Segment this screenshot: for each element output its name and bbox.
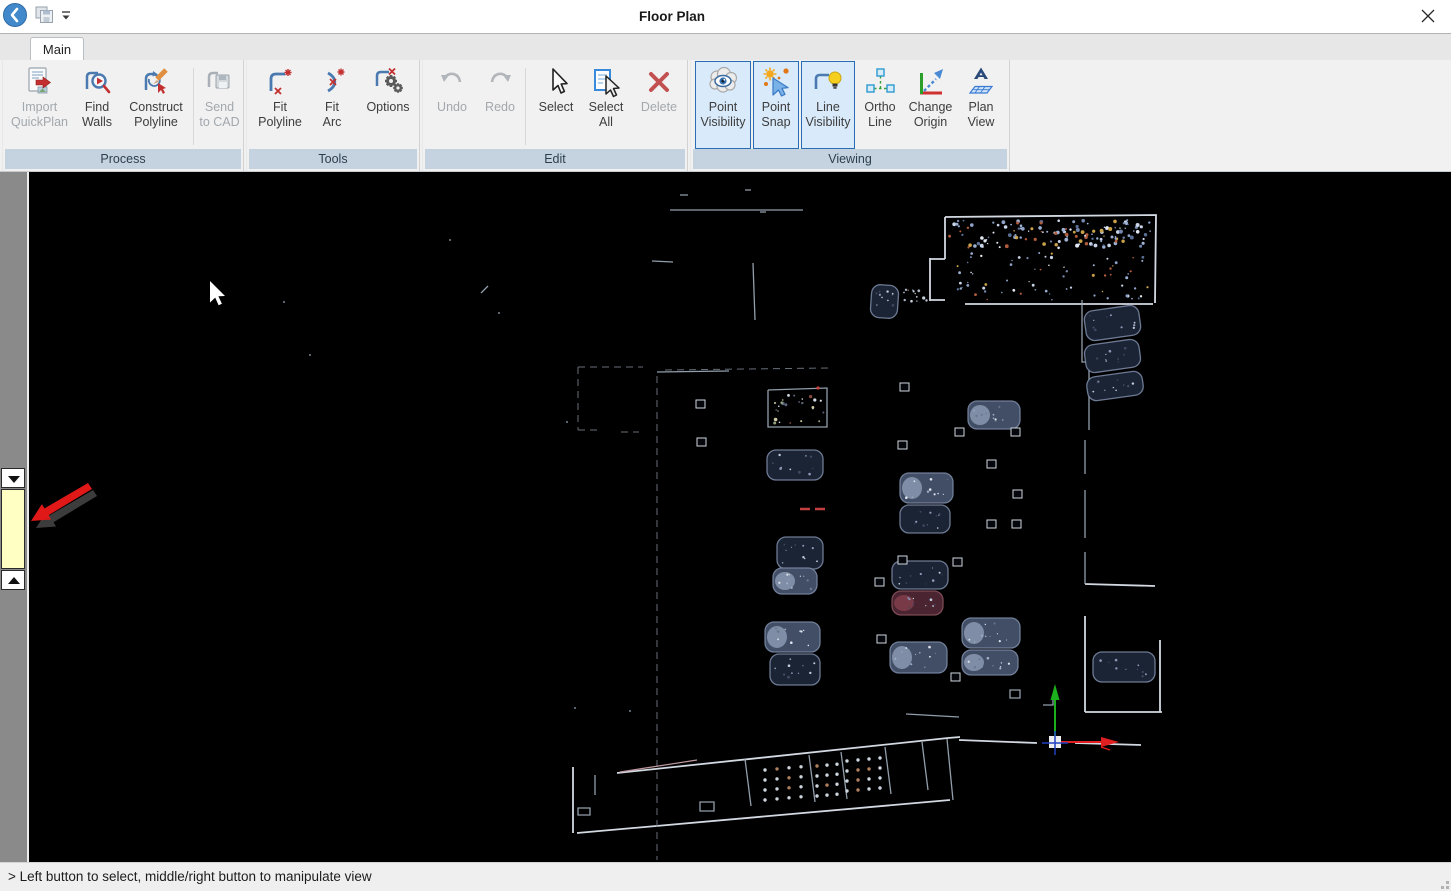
button-label-line2: Polyline (134, 115, 178, 130)
undo-icon (436, 66, 468, 98)
button-label-line2: Snap (761, 115, 790, 130)
options-icon (372, 66, 404, 98)
wall-lines-medium (481, 190, 1089, 815)
ribbon-button-point-visibility[interactable]: Point Visibility (695, 61, 751, 149)
triangle-up-icon (8, 577, 20, 584)
ribbon-group-viewing: Point Visibility Point Snap (690, 60, 1010, 171)
ribbon-group-process: Import QuickPlan Find Walls (2, 60, 244, 171)
button-label-line2: Walls (82, 115, 112, 130)
button-label-line1: Redo (485, 100, 515, 115)
find-walls-icon (81, 66, 113, 98)
construct-polyline-icon (140, 66, 172, 98)
button-label-line1: Change (909, 100, 953, 115)
ribbon-button-point-snap[interactable]: Point Snap (753, 61, 799, 149)
status-text: > Left button to select, middle/right bu… (8, 869, 372, 884)
button-label-line2: Visibility (701, 115, 746, 130)
send-to-cad-icon (204, 66, 236, 98)
button-label-line1: Construct (129, 100, 183, 115)
button-label-line1: Point (762, 100, 791, 115)
ribbon-button-redo[interactable]: Redo (477, 62, 523, 148)
titlebar: Floor Plan (0, 0, 1451, 33)
point-cloud-canvas[interactable] (29, 172, 1451, 862)
button-label-line1: Find (85, 100, 109, 115)
resize-grip-icon[interactable] (1437, 877, 1449, 889)
ribbon-button-undo[interactable]: Undo (430, 62, 474, 148)
ribbon-button-send-to-cad[interactable]: Send to CAD (196, 62, 243, 148)
plan-view-icon (965, 66, 997, 98)
ribbon-button-fit-arc[interactable]: Fit Arc (309, 62, 355, 148)
delete-icon (643, 66, 675, 98)
button-label-line2: All (599, 115, 613, 130)
point-cloud-svg (29, 172, 1451, 862)
floor-plan-window: { "window": { "title": "Floor Plan", "ba… (0, 0, 1451, 891)
ribbon-group-label-viewing: Viewing (693, 149, 1007, 169)
ribbon: Import QuickPlan Find Walls (0, 60, 1451, 172)
tab-strip: Main (0, 33, 1451, 60)
point-visibility-icon (707, 66, 739, 98)
import-quickplan-icon (24, 66, 56, 98)
ribbon-button-delete[interactable]: Delete (633, 62, 685, 148)
ribbon-button-import-quickplan[interactable]: Import QuickPlan (6, 62, 73, 148)
line-visibility-icon (812, 66, 844, 98)
button-label-line1: Point (709, 100, 738, 115)
ribbon-group-label-edit: Edit (425, 149, 685, 169)
button-label-line2: Visibility (806, 115, 851, 130)
ribbon-button-fit-polyline[interactable]: Fit Polyline (254, 62, 306, 148)
button-label-line2: Origin (914, 115, 947, 130)
close-x-icon (1419, 7, 1437, 25)
button-label-line2: Arc (323, 115, 342, 130)
button-label-line2: QuickPlan (11, 115, 68, 130)
ribbon-button-select[interactable]: Select (531, 62, 581, 148)
annotation-red-arrow (0, 455, 110, 535)
select-all-icon (590, 66, 622, 98)
ribbon-button-find-walls[interactable]: Find Walls (75, 62, 119, 148)
ribbon-group-label-tools: Tools (249, 149, 417, 169)
point-snap-icon (760, 66, 792, 98)
button-label-line2: View (968, 115, 995, 130)
ribbon-button-plan-view[interactable]: Plan View (959, 62, 1003, 148)
button-label-line1: Select (539, 100, 574, 115)
ribbon-button-construct-polyline[interactable]: Construct Polyline (121, 62, 191, 148)
close-button[interactable] (1419, 7, 1437, 25)
ribbon-button-select-all[interactable]: Select All (583, 62, 629, 148)
ribbon-group-label-process: Process (5, 149, 241, 169)
button-label-line1: Options (366, 100, 409, 115)
button-label-line1: Undo (437, 100, 467, 115)
ribbon-separator (193, 68, 194, 145)
select-icon (540, 66, 572, 98)
button-label-line1: Fit (325, 100, 339, 115)
coordinate-origin-axes (1042, 684, 1119, 755)
button-label-line2: Polyline (258, 115, 302, 130)
ribbon-button-ortho-line[interactable]: Ortho Line (857, 62, 903, 148)
mouse-cursor-arrow (206, 281, 232, 311)
wall-lines-bright (573, 215, 1162, 833)
ribbon-group-tools: Fit Polyline Fit Arc (246, 60, 420, 171)
slider-scroll-up-button[interactable] (1, 570, 25, 590)
button-label-line1: Fit (273, 100, 287, 115)
red-dot (816, 386, 819, 389)
button-label-line2: to CAD (199, 115, 239, 130)
button-label-line1: Ortho (864, 100, 895, 115)
button-label-line1: Line (816, 100, 840, 115)
button-label-line2: Line (868, 115, 892, 130)
ribbon-button-line-visibility[interactable]: Line Visibility (801, 61, 855, 149)
tab-main[interactable]: Main (30, 37, 84, 61)
ribbon-separator (525, 68, 526, 145)
button-label-line1: Delete (641, 100, 677, 115)
fit-polyline-icon (264, 66, 296, 98)
change-origin-icon (915, 66, 947, 98)
ribbon-group-edit: Undo Redo Select (422, 60, 688, 171)
status-bar: > Left button to select, middle/right bu… (0, 862, 1451, 891)
button-label-line1: Select (589, 100, 624, 115)
redo-icon (484, 66, 516, 98)
button-label-line1: Send (205, 100, 234, 115)
ribbon-button-options[interactable]: Options (359, 62, 417, 148)
window-title: Floor Plan (0, 0, 1344, 33)
button-label-line1: Plan (968, 100, 993, 115)
button-label-line1: Import (22, 100, 57, 115)
ortho-line-icon (864, 66, 896, 98)
ribbon-button-change-origin[interactable]: Change Origin (904, 62, 957, 148)
fit-arc-icon (316, 66, 348, 98)
